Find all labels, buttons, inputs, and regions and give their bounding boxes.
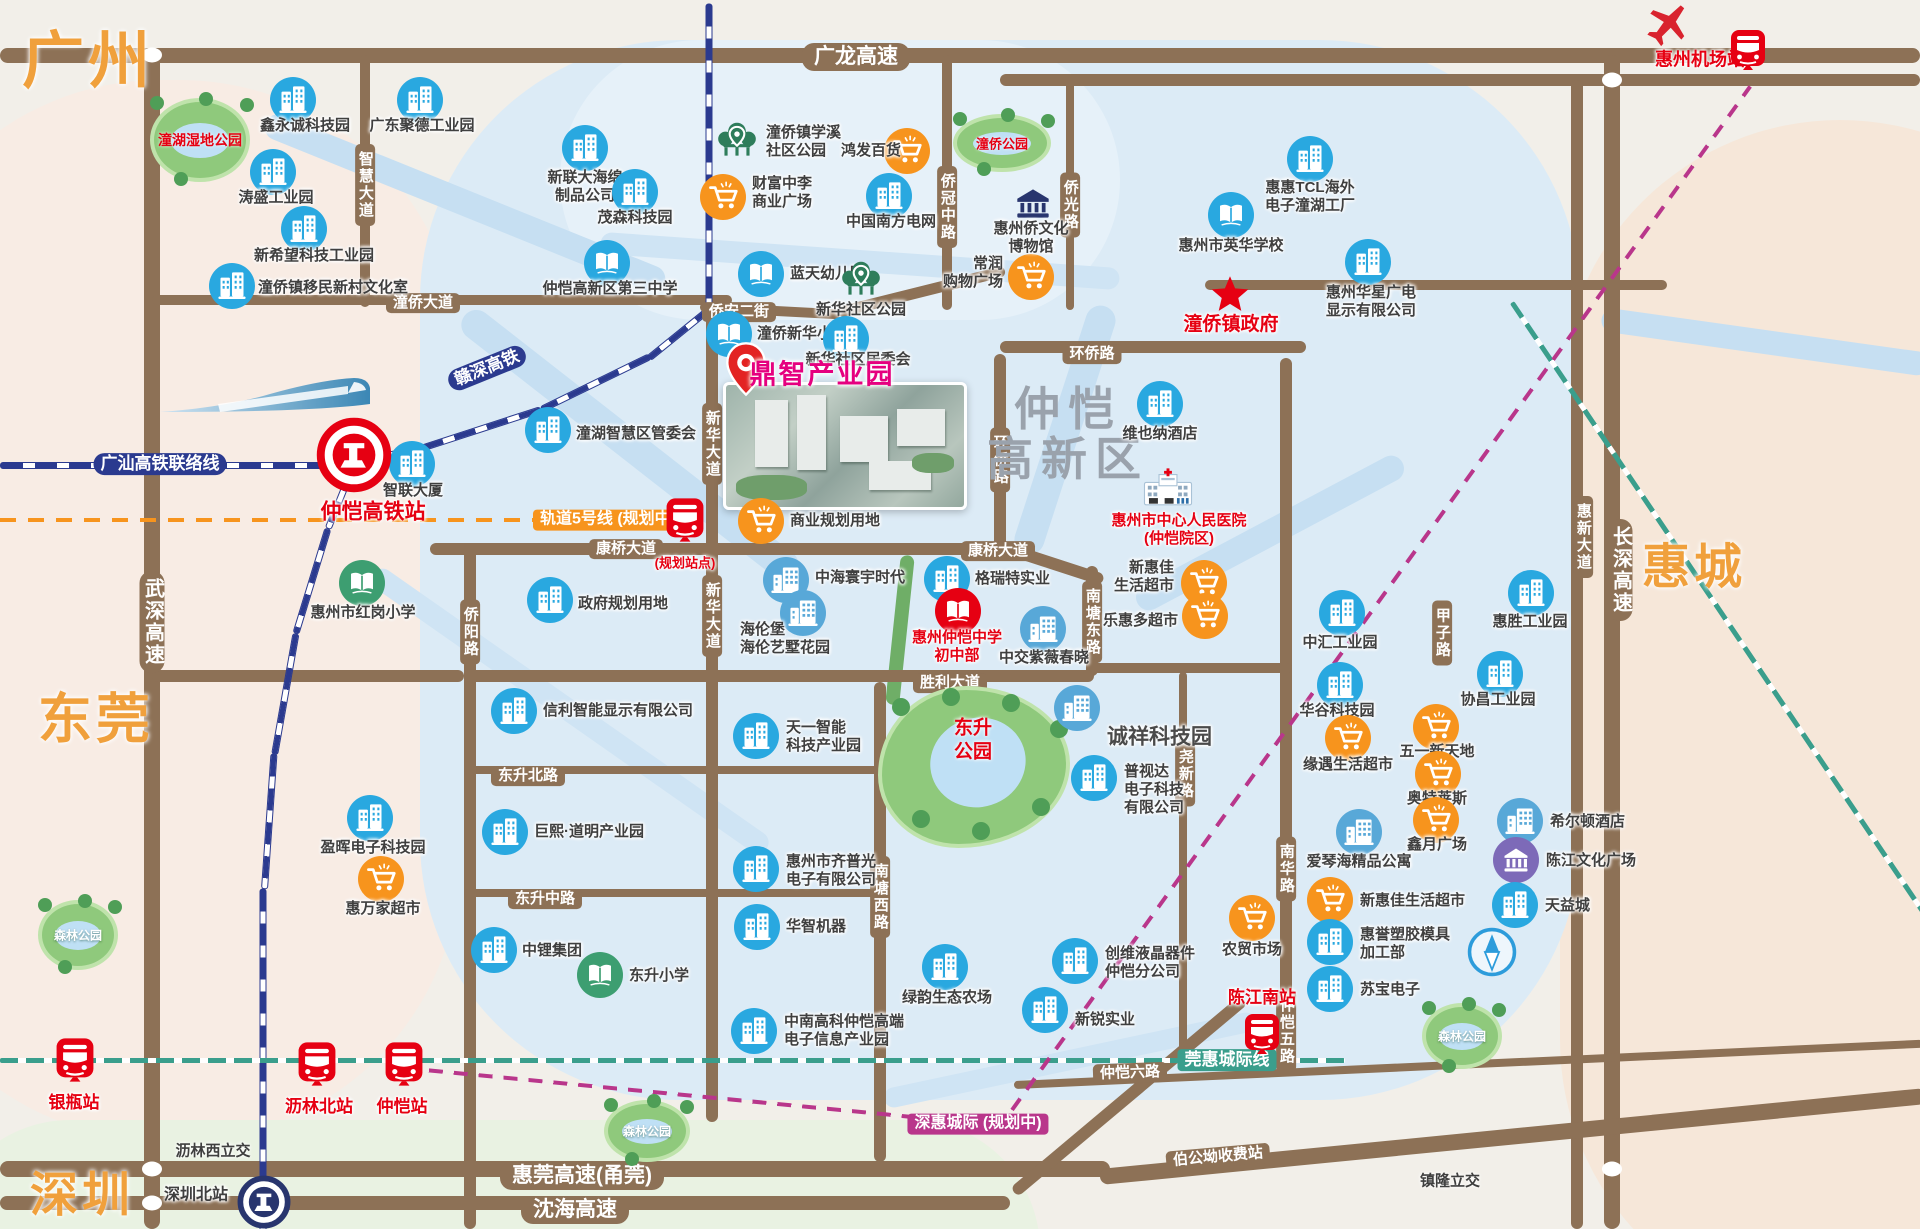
poi-icon-bldg — [1477, 651, 1523, 697]
poi-label: 潼侨镇学溪 — [766, 124, 841, 142]
city-label-广州: 广州 — [22, 10, 154, 100]
poi-label: 普视达 — [1124, 763, 1169, 781]
tree-icon — [150, 96, 164, 110]
poi-label: 有限公司 — [1124, 799, 1184, 817]
poi-icon-bldg — [525, 407, 571, 453]
road-label: 惠新大道 — [1573, 496, 1593, 578]
poi-label: 潼湖智慧区管委会 — [576, 425, 696, 443]
poi-label: 中锂集团 — [522, 942, 582, 960]
station-icon-仲恺高铁站 — [316, 417, 392, 493]
poi-label: 希尔顿酒店 — [1550, 813, 1625, 831]
poi-icon-cart — [1182, 593, 1228, 639]
station-icon-银瓶站 — [49, 1034, 101, 1086]
road-label: 武深高速 — [140, 571, 165, 673]
tree-icon — [1492, 1003, 1506, 1017]
rail-label: 广汕高铁联络线 — [94, 453, 227, 475]
poi-label: 惠誉塑胶模具 — [1360, 926, 1450, 944]
road-segment — [0, 48, 1920, 63]
poi-label: 鑫月广场 — [1407, 836, 1467, 854]
poi-icon-bldg — [491, 688, 537, 734]
poi-icon-parktree — [838, 257, 884, 303]
poi-label: 中海寰宇时代 — [815, 569, 905, 587]
project-title: 鼎智产业园 — [750, 353, 895, 392]
poi-label: 新锐实业 — [1075, 1011, 1135, 1029]
poi-icon-bldg — [1317, 662, 1363, 708]
tree-icon — [78, 894, 92, 908]
city-label-深圳: 深圳 — [30, 1155, 134, 1225]
station-label: 仲恺站 — [377, 1097, 428, 1117]
poi-icon-cart — [1307, 877, 1353, 923]
poi-icon-bldg — [866, 173, 912, 219]
tree-icon — [892, 698, 910, 716]
poi-icon-bldg — [1022, 987, 1068, 1033]
poi-label: 绿韵生态农场 — [902, 989, 992, 1007]
poi-icon-museum-purple — [1493, 837, 1539, 883]
poi-label: 财富中李 — [752, 175, 812, 193]
road-label: 长深高速 — [1608, 519, 1633, 621]
airport-train-icon — [1724, 26, 1772, 74]
poi-icon-bldg — [1319, 590, 1365, 636]
park-label-dongsheng: 公园 — [954, 737, 992, 764]
road-label: 南华路 — [1276, 837, 1296, 902]
station-label: 仲恺高铁站 — [321, 501, 426, 526]
poi-label: 鸿发百货 — [841, 142, 901, 160]
poi-label: 创维液晶器件 — [1105, 945, 1195, 963]
road-label: 仲恺六路 — [1093, 1062, 1168, 1084]
city-label-惠城: 惠城 — [1642, 527, 1746, 597]
poi-label: 潼侨镇政府 — [1183, 314, 1278, 336]
poi-icon-bldg2 — [1054, 685, 1100, 731]
poi-icon-bldg — [731, 1008, 777, 1054]
road-label: 侨阳路 — [460, 600, 480, 665]
poi-icon-parktree — [714, 118, 760, 164]
station-icon-深圳北站 — [237, 1175, 291, 1229]
poi-label: 博物馆 — [1008, 238, 1053, 256]
park-label: 森林公园 — [54, 927, 102, 944]
road-segment — [1086, 663, 1292, 673]
road-segment — [1205, 280, 1667, 290]
park-label: 潼侨公园 — [976, 134, 1028, 153]
road-segment — [430, 543, 1015, 555]
poi-icon-bldg — [922, 944, 968, 990]
tree-icon — [1422, 1001, 1436, 1015]
poi-label: 商业规划用地 — [790, 512, 880, 530]
poi-label: 社区公园 — [766, 142, 826, 160]
tree-icon — [953, 112, 967, 126]
poi-icon-bldg — [1137, 381, 1183, 427]
compass-icon — [1466, 926, 1518, 978]
park-label: 潼湖湿地公园 — [158, 130, 242, 150]
poi-label: 苏宝电子 — [1360, 981, 1420, 999]
poi-label: 海伦艺墅花园 — [740, 639, 830, 657]
poi-label: 华智机器 — [786, 918, 846, 936]
road-junction-dot — [142, 1162, 162, 1177]
tree-icon — [174, 172, 188, 186]
road-label: 沈海高速 — [521, 1196, 629, 1224]
poi-label: 信利智能显示有限公司 — [543, 702, 693, 720]
poi-icon-book-green — [339, 560, 385, 606]
station-label: 沥林北站 — [285, 1097, 353, 1117]
tree-icon — [38, 898, 52, 912]
poi-label: 新希望科技工业园 — [254, 247, 374, 265]
road-segment — [1000, 74, 1920, 86]
park-森林公园: 森林公园 — [38, 900, 118, 970]
poi-label: 商业广场 — [752, 193, 812, 211]
poi-label: 仲恺高新区第三中学 — [542, 280, 677, 298]
poi-icon-book-red — [935, 588, 981, 634]
tree-icon — [199, 92, 213, 106]
poi-icon-bldg — [1052, 938, 1098, 984]
station-label: (规划站点) — [655, 555, 716, 570]
interchange-label: 沥林西立交 — [175, 1140, 250, 1161]
park-森林公园: 森林公园 — [604, 1100, 690, 1162]
poi-label: 维也纳酒店 — [1122, 425, 1197, 443]
poi-icon-bldg — [270, 77, 316, 123]
poi-label: 协昌工业园 — [1460, 691, 1535, 709]
road-label: 新华大道 — [702, 575, 722, 657]
poi-label: 常润 — [973, 255, 1003, 273]
poi-label: 盈晖电子科技园 — [320, 839, 425, 857]
poi-icon-book-blue — [584, 240, 630, 286]
park-森林公园: 森林公园 — [1422, 1003, 1502, 1069]
tree-icon — [1442, 1059, 1456, 1073]
poi-label: 科技产业园 — [786, 737, 861, 755]
road-junction-dot — [1602, 73, 1622, 88]
poi-label: 惠州市英华学校 — [1178, 237, 1283, 255]
poi-label: 格瑞特实业 — [975, 570, 1050, 588]
interchange-label: 镇隆立交 — [1420, 1170, 1480, 1191]
poi-label: 农贸市场 — [1222, 941, 1282, 959]
station-label: 银瓶站 — [49, 1093, 100, 1113]
poi-label: 电子有限公司 — [786, 871, 876, 889]
poi-label: 政府规划用地 — [578, 595, 668, 613]
poi-label: 陈江文化广场 — [1546, 852, 1636, 870]
poi-icon-cart — [738, 498, 784, 544]
poi-label: 中国南方电网 — [846, 213, 936, 231]
poi-icon-bldg — [281, 206, 327, 252]
tree-icon — [647, 1094, 661, 1108]
station-icon-沥林北站 — [291, 1038, 343, 1090]
poi-label: 惠万家超市 — [345, 900, 420, 918]
poi-icon-bldg2 — [1336, 809, 1382, 855]
poi-icon-cart — [700, 174, 746, 220]
poi-label: (仲恺院区) — [1144, 530, 1214, 548]
poi-label: 惠惠TCL海外 — [1265, 179, 1354, 197]
poi-label: 制品公司 — [555, 187, 615, 205]
tree-icon — [58, 960, 72, 974]
road-label: 侨冠中路 — [937, 166, 957, 248]
station-icon-惠州机场站 — [1641, 0, 1695, 51]
poi-label: 涛盛工业园 — [238, 189, 313, 207]
tree-icon — [604, 1098, 618, 1112]
poi-icon-bldg — [733, 713, 779, 759]
poi-icon-book-blue — [738, 251, 784, 297]
poi-label: 初中部 — [934, 647, 979, 665]
park-label-dongsheng: 东升 — [954, 713, 992, 740]
poi-icon-book-blue — [1208, 192, 1254, 238]
poi-icon-bldg — [1287, 136, 1333, 182]
station-icon-陈江南站 — [1238, 1010, 1286, 1058]
poi-icon-cart — [1325, 715, 1371, 761]
poi-label: 惠州市红岗小学 — [310, 604, 415, 622]
poi-label: 电子科技 — [1124, 781, 1184, 799]
poi-label: 显示有限公司 — [1326, 302, 1416, 320]
poi-icon-bldg — [1307, 919, 1353, 965]
poi-label: 惠州市中心人民医院 — [1111, 512, 1246, 530]
road-label: 环侨路 — [1062, 344, 1121, 364]
road-label: 东升北路 — [491, 766, 565, 786]
poi-label: 电子信息产业园 — [784, 1031, 889, 1049]
rail-ganshen — [706, 4, 713, 306]
tree-icon — [912, 810, 930, 828]
poi-label: 电子潼湖工厂 — [1265, 197, 1355, 215]
road-segment — [464, 670, 1094, 682]
poi-label: 中汇工业园 — [1302, 634, 1377, 652]
poi-icon-bldg — [482, 809, 528, 855]
poi-label: 鑫永诚科技园 — [260, 117, 350, 135]
road-segment — [152, 670, 464, 682]
poi-label: 惠胜工业园 — [1492, 613, 1567, 631]
park-label: 森林公园 — [623, 1123, 671, 1140]
poi-icon-bldg — [471, 927, 517, 973]
road-label: 东升中路 — [508, 889, 582, 909]
poi-label: 中南高科仲恺高端 — [784, 1013, 904, 1031]
tree-icon — [240, 98, 254, 112]
road-junction-dot — [142, 1196, 162, 1211]
poi-label: 广东聚德工业园 — [369, 117, 474, 135]
road-label: 惠莞高速(甬莞) — [500, 1162, 664, 1190]
poi-label: 诚祥科技园 — [1107, 726, 1212, 751]
rail-label: 深惠城际 (规划中) — [907, 1114, 1048, 1135]
tree-icon — [942, 688, 960, 706]
poi-label: 惠州侨文化 — [993, 220, 1068, 238]
tree-icon — [972, 822, 990, 840]
poi-label: 加工部 — [1360, 944, 1405, 962]
poi-icon-hospital — [1140, 463, 1196, 513]
poi-label: 惠州仲恺中学 — [912, 629, 1002, 647]
poi-label: 新惠佳生活超市 — [1360, 892, 1465, 910]
poi-icon-bldg — [389, 441, 435, 487]
poi-label: 天一智能 — [786, 719, 846, 737]
poi-label: 惠州市齐普光 — [786, 853, 876, 871]
location-map: 广龙高速潼侨大道侨安二街智慧大道环侨路环侨路侨冠中路侨光路武深高速新华大道新华大… — [0, 0, 1920, 1229]
poi-icon-bldg — [1492, 882, 1538, 928]
poi-icon-cart — [358, 856, 404, 902]
poi-label: 生活超市 — [1114, 577, 1174, 595]
poi-icon-star — [1207, 271, 1253, 317]
poi-icon-bldg — [734, 904, 780, 950]
road-segment — [1000, 341, 1306, 353]
poi-label: 新惠佳 — [1129, 559, 1174, 577]
poi-label: 天益城 — [1545, 897, 1590, 915]
poi-icon-bldg — [1307, 966, 1353, 1012]
poi-icon-bldg — [562, 125, 608, 171]
poi-icon-cart — [1229, 895, 1275, 941]
road-label: 广龙高速 — [802, 43, 910, 71]
poi-icon-bldg2 — [1020, 606, 1066, 652]
poi-icon-book-green — [577, 952, 623, 998]
poi-label: 缘遇生活超市 — [1303, 756, 1393, 774]
poi-icon-bldg2 — [780, 590, 826, 636]
poi-label: 爱琴海精品公寓 — [1306, 853, 1411, 871]
tree-icon — [1001, 108, 1015, 122]
road-label: 智慧大道 — [355, 144, 375, 226]
station-label: 深圳北站 — [164, 1187, 228, 1206]
poi-label: 潼侨镇移民新村文化室 — [258, 279, 408, 297]
road-junction-dot — [1602, 1162, 1622, 1177]
tree-icon — [1041, 114, 1055, 128]
poi-icon-bldg — [1345, 239, 1391, 285]
park-潼侨公园: 潼侨公园 — [953, 114, 1051, 172]
poi-icon-bldg — [1508, 570, 1554, 616]
road-label: 新华大道 — [702, 403, 722, 485]
station-label: 陈江南站 — [1228, 988, 1296, 1008]
tree-icon — [680, 1100, 694, 1114]
tree-icon — [1002, 694, 1020, 712]
tree-icon — [977, 162, 991, 176]
train-illustration — [158, 362, 373, 424]
station-icon-仲恺站 — [378, 1038, 430, 1090]
tree-icon — [1462, 997, 1476, 1011]
poi-icon-bldg — [250, 149, 296, 195]
poi-icon-bldg — [397, 77, 443, 123]
road-label: 甲子路 — [1432, 601, 1452, 666]
road-label: 康桥大道 — [961, 541, 1035, 561]
park-label: 森林公园 — [1438, 1028, 1486, 1045]
poi-label: 购物广场 — [943, 273, 1003, 291]
poi-icon-bldg — [733, 846, 779, 892]
poi-label: 中交紫薇春晓 — [999, 649, 1089, 667]
station-icon-(规划站点) — [659, 494, 711, 546]
poi-icon-bldg — [612, 169, 658, 215]
poi-icon-bldg — [1071, 755, 1117, 801]
city-label-东莞: 东莞 — [38, 675, 154, 754]
tree-icon — [108, 900, 122, 914]
poi-label: 东升小学 — [629, 967, 689, 985]
poi-icon-cart — [1008, 254, 1054, 300]
park-潼湖湿地公园: 潼湖湿地公园 — [150, 98, 250, 182]
poi-label: 仲恺分公司 — [1105, 963, 1180, 981]
poi-label: 巨熙·道明产业园 — [534, 823, 644, 841]
poi-icon-bldg — [527, 577, 573, 623]
poi-label: 海伦堡 — [740, 621, 785, 639]
poi-icon-bldg — [209, 263, 255, 309]
poi-label: 茂森科技园 — [597, 209, 672, 227]
tree-icon — [1032, 798, 1050, 816]
road-label: 康桥大道 — [589, 539, 663, 559]
poi-icon-bldg — [347, 795, 393, 841]
poi-label: 乐惠多超市 — [1103, 612, 1178, 630]
poi-label: 惠州华星广电 — [1326, 284, 1416, 302]
rail-metro5 — [0, 518, 560, 522]
